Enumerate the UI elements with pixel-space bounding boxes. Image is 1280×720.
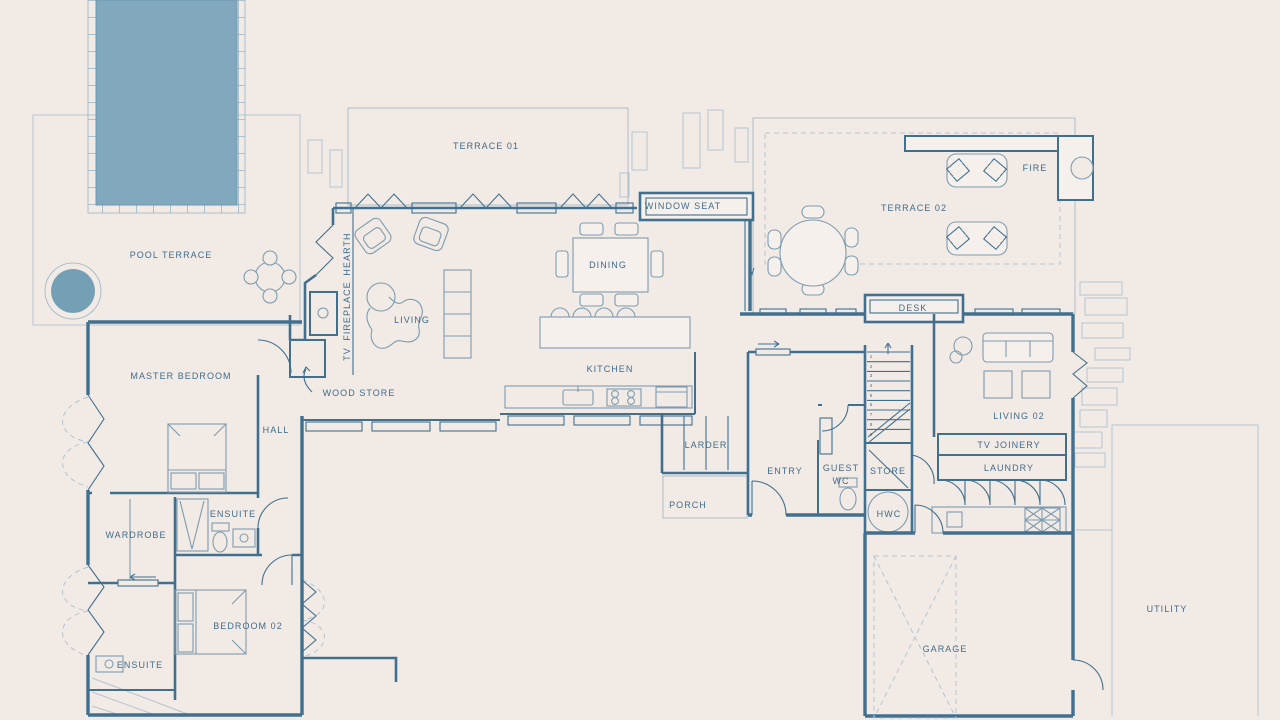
room-label-guest-wc-line1: GUEST (823, 463, 859, 473)
hot-tub (45, 263, 101, 319)
room-label-living: LIVING (394, 315, 430, 325)
walls-garage (865, 505, 1103, 718)
room-label-pool-terrace: POOL TERRACE (130, 250, 213, 260)
stair-number: 2 (870, 364, 873, 369)
stair-number: 6 (870, 402, 873, 407)
stair-number: 4 (870, 383, 873, 388)
room-label-entry: ENTRY (767, 466, 803, 476)
walls-right-wing (932, 314, 1087, 533)
terrace-lounge-benches (947, 154, 1007, 255)
room-label-fire: FIRE (1023, 163, 1048, 173)
room-label-master-bedroom: MASTER BEDROOM (130, 371, 231, 381)
room-label-hall: HALL (263, 425, 290, 435)
room-label-tv-joinery: TV JOINERY (977, 440, 1040, 450)
room-label-ensuite-master: ENSUITE (210, 509, 256, 519)
room-label-garage: GARAGE (923, 644, 968, 654)
utility-room-outline (1076, 425, 1258, 716)
terrace-01-paving (348, 108, 628, 205)
room-label-terrace-02: TERRACE 02 (881, 203, 947, 213)
room-label-store: STORE (870, 466, 906, 476)
stair-number: 8 (870, 422, 873, 427)
stair-number: 3 (870, 373, 873, 378)
stair-tread-numbers: 1 2 3 4 5 6 7 8 9 (870, 354, 873, 437)
floor-plan-canvas: POOL TERRACE TERRACE 01 WINDOW SEAT TERR… (0, 0, 1280, 720)
room-label-hwc: HWC (877, 509, 902, 519)
room-label-utility: UTILITY (1147, 604, 1188, 614)
room-label-laundry: LAUNDRY (984, 463, 1034, 473)
room-label-dining: DINING (589, 260, 627, 270)
ensuite-master-fixtures (177, 499, 255, 552)
stair-number: 5 (870, 393, 873, 398)
room-label-window-seat: WINDOW SEAT (645, 201, 721, 211)
room-label-porch: PORCH (669, 500, 707, 510)
pool-terrace-table (244, 251, 296, 303)
room-label-tv: TV (342, 347, 352, 361)
floor-plan-drawing: POOL TERRACE TERRACE 01 WINDOW SEAT TERR… (0, 0, 1280, 720)
room-label-bedroom-02: BEDROOM 02 (213, 621, 283, 631)
swimming-pool (88, 0, 245, 213)
room-label-fireplace: FIREPLACE (342, 281, 352, 340)
stair-number: 1 (870, 354, 873, 359)
terrace-dining-table (768, 206, 858, 295)
room-label-hearth: HEARTH (342, 232, 352, 275)
room-label-guest-wc-line2: WC (832, 476, 849, 486)
kitchen-island (540, 308, 690, 348)
room-label-desk: DESK (899, 303, 928, 313)
porch-paving (663, 476, 747, 518)
master-bed (168, 424, 226, 492)
room-label-terrace-01: TERRACE 01 (453, 141, 519, 151)
living-shelving (444, 270, 471, 358)
stair-number: 9 (870, 432, 873, 437)
room-label-larder: LARDER (685, 440, 728, 450)
stair-number: 7 (870, 412, 873, 417)
room-label-living-02: LIVING 02 (993, 411, 1044, 421)
room-label-wardrobe: WARDROBE (105, 530, 166, 540)
kitchen-counter (505, 386, 692, 408)
room-label-ensuite-02: ENSUITE (117, 660, 163, 670)
room-label-wood-store: WOOD STORE (323, 388, 396, 398)
room-label-kitchen: KITCHEN (587, 364, 634, 374)
living-armchairs (353, 216, 450, 256)
